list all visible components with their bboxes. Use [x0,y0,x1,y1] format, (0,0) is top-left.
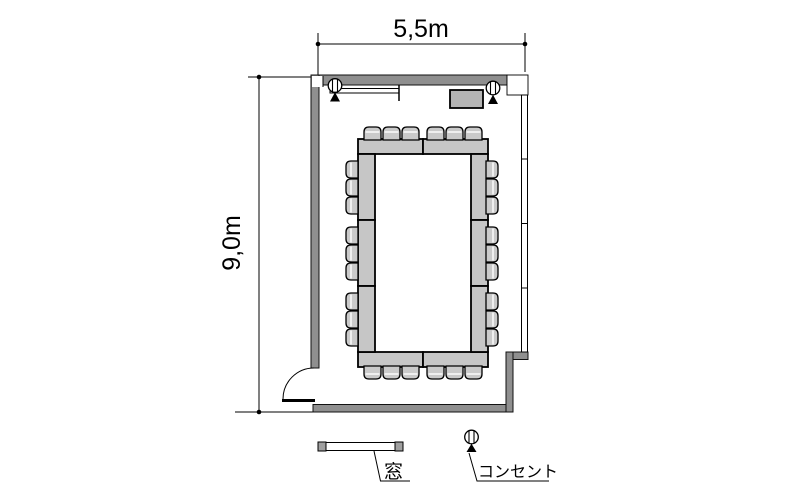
legend-window-symbol: 窓 [318,442,410,483]
chair [486,293,498,310]
chair [486,311,498,328]
chair [486,245,498,262]
window-symbol-cap [318,442,326,451]
chair [465,366,482,379]
dimension-tick [257,75,262,80]
table-top [423,139,488,154]
chair [402,366,419,379]
wall-corner-return [507,75,528,95]
chair [446,127,463,140]
wall-step-vertical [506,352,513,412]
wall-left [311,75,319,368]
chair [402,127,419,140]
chair [346,179,358,196]
wall-joint-notch [312,76,323,87]
chair [427,366,444,379]
outlet-icon [465,430,479,452]
chair [486,197,498,214]
door-swing-arc [283,368,314,399]
chair [346,197,358,214]
outlet-icon [486,81,500,104]
dimension-tick [523,42,528,47]
chair [346,263,358,280]
chair [346,329,358,346]
table-left [358,286,375,352]
chair [346,311,358,328]
legend-outlet-label: コンセント [478,464,558,481]
dimension-tick [316,42,321,47]
chair [364,366,381,379]
floor-plan-page: 5,5m 9,0m [0,0,800,490]
chair [486,227,498,244]
dimension-top: 5,5m [316,15,528,75]
chair [383,366,400,379]
floor-plan-drawing: 5,5m 9,0m [0,0,800,490]
chair [346,161,358,178]
chair [465,127,482,140]
chair [486,161,498,178]
chair [346,293,358,310]
conference-tables [358,139,488,367]
table-bottom [358,352,423,367]
outlet-icon [328,79,342,102]
chair [486,179,498,196]
door-leaf [282,399,315,402]
chair [486,329,498,346]
legend-outlet-symbol: コンセント [465,430,558,481]
chair [364,127,381,140]
chair [346,245,358,262]
table-left [358,154,375,220]
window-symbol-cap [395,442,403,451]
equipment-box [450,90,483,108]
chair [486,263,498,280]
chair [427,127,444,140]
chair [446,366,463,379]
table-top [358,139,423,154]
chair [383,127,400,140]
dimension-width-label: 5,5m [393,15,449,43]
window-symbol-glass [326,443,395,451]
table-left [358,220,375,286]
chair [346,227,358,244]
table-bottom [423,352,488,367]
legend-window-label: 窓 [384,461,403,483]
wall-bottom [313,405,513,413]
window-right [522,95,528,352]
dimension-tick [257,410,262,415]
dimension-left: 9,0m [218,75,313,415]
entrance-door [282,368,315,402]
dimension-height-label: 9,0m [218,215,246,271]
legend: 窓 コンセント [318,430,558,483]
